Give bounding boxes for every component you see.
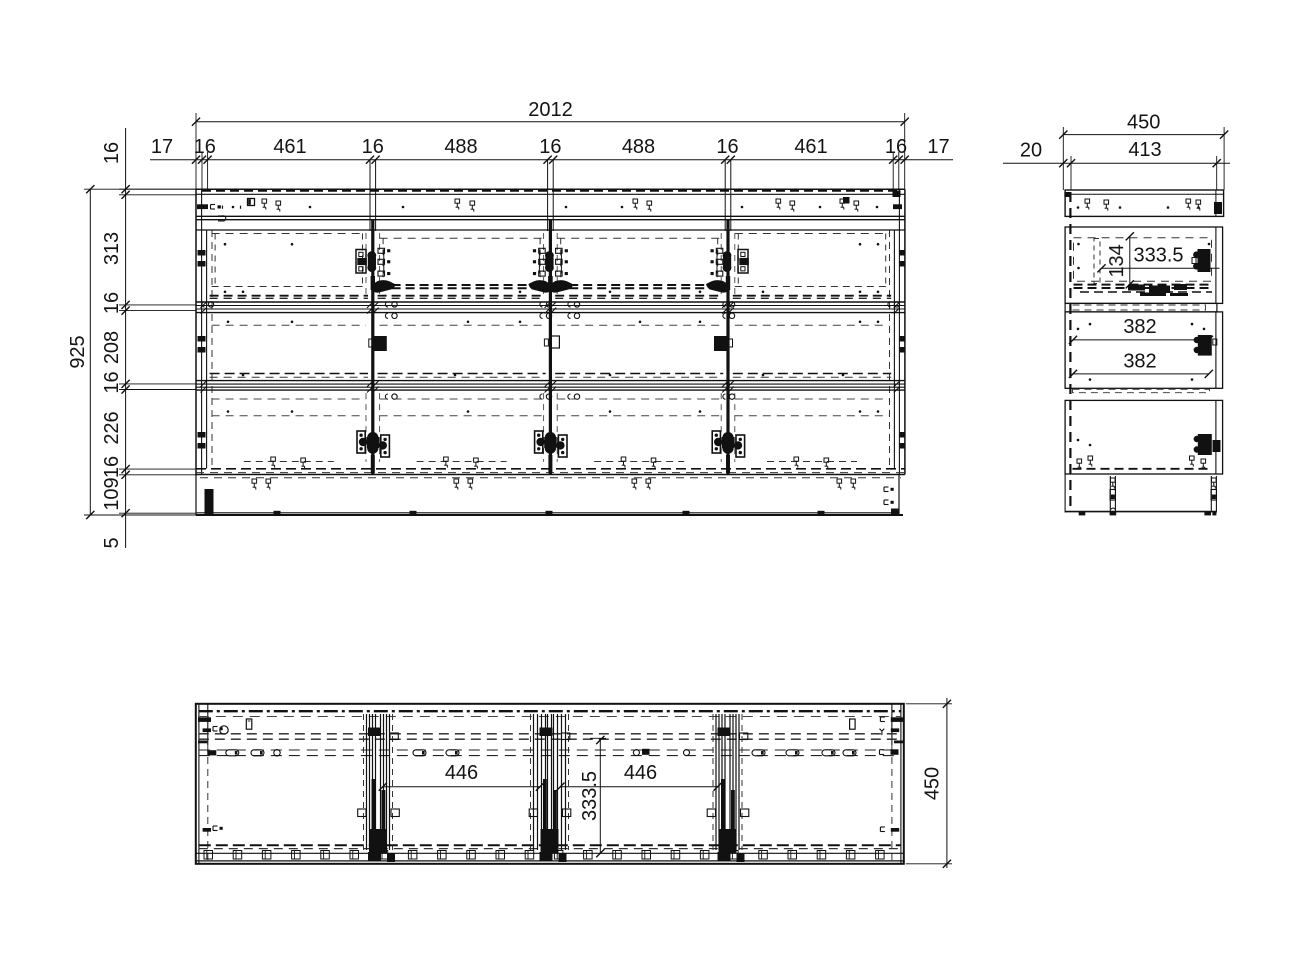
svg-text:16: 16: [101, 456, 123, 478]
svg-text:16: 16: [539, 136, 561, 158]
svg-text:17: 17: [927, 136, 949, 158]
svg-text:488: 488: [444, 136, 477, 158]
svg-text:16: 16: [362, 136, 384, 158]
svg-text:226: 226: [101, 411, 123, 444]
svg-text:109: 109: [101, 477, 123, 510]
svg-text:20: 20: [1020, 140, 1042, 162]
svg-text:446: 446: [445, 762, 478, 784]
svg-text:382: 382: [1123, 350, 1156, 372]
svg-text:925: 925: [67, 335, 89, 368]
svg-text:450: 450: [1127, 111, 1160, 133]
svg-text:16: 16: [101, 292, 123, 314]
svg-text:450: 450: [922, 767, 944, 800]
svg-text:461: 461: [794, 136, 827, 158]
svg-text:461: 461: [273, 136, 306, 158]
svg-text:2012: 2012: [528, 99, 573, 121]
svg-text:333.5: 333.5: [1133, 244, 1183, 266]
svg-text:413: 413: [1128, 139, 1161, 161]
svg-text:17: 17: [151, 136, 173, 158]
svg-text:313: 313: [101, 232, 123, 265]
svg-text:16: 16: [101, 371, 123, 393]
svg-text:16: 16: [101, 142, 123, 164]
svg-text:488: 488: [622, 136, 655, 158]
svg-text:134: 134: [1106, 244, 1128, 277]
svg-text:16: 16: [194, 136, 216, 158]
svg-text:208: 208: [101, 331, 123, 364]
svg-text:5: 5: [101, 537, 123, 548]
svg-text:333.5: 333.5: [579, 771, 601, 821]
svg-text:16: 16: [885, 136, 907, 158]
svg-text:446: 446: [624, 762, 657, 784]
svg-text:16: 16: [716, 136, 738, 158]
svg-text:382: 382: [1123, 316, 1156, 338]
